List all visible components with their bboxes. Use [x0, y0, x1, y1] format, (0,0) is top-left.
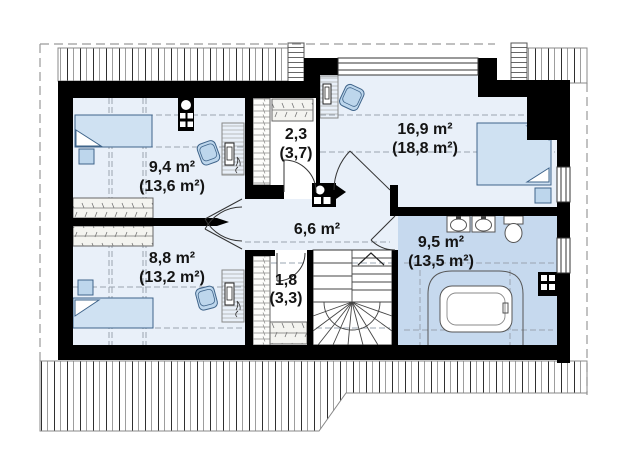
- roof-window-right-icon: [511, 43, 527, 83]
- sink-left: [447, 216, 470, 232]
- closet-top-wardrobe: [272, 99, 313, 121]
- floor-plan-page: 9,4 m² (13,6 m²) 2,3 (3,7) 16,9 m² (18,8…: [0, 0, 640, 473]
- floor-staircase: [313, 250, 392, 345]
- desk-2: [222, 270, 244, 322]
- window-right-bathroom: [557, 238, 570, 273]
- single-bed-2: [73, 298, 153, 328]
- nightstand-4: [535, 188, 551, 203]
- floor-closet-top-door-gap: [284, 185, 316, 199]
- chimney-1: [178, 97, 194, 131]
- floor-bathroom-door-gap: [392, 216, 398, 250]
- tap-icon: [481, 216, 486, 220]
- closet-bottom-shelving: [253, 256, 270, 345]
- label-closet-top-total: (3,7): [280, 145, 313, 162]
- roof-hatch-top-right: [527, 48, 587, 83]
- window-right-bedroom: [557, 167, 570, 202]
- nightstand-1: [79, 149, 94, 164]
- label-closet-bottom-total: (3,3): [270, 290, 303, 307]
- desk-1: [222, 123, 244, 175]
- roof-hatch-top-left: [58, 48, 288, 81]
- roof-window-left-icon: [288, 43, 304, 83]
- label-bedroom-top-left: 9,4 m²: [149, 159, 195, 176]
- label-hall: 6,6 m²: [294, 221, 340, 238]
- label-closet-bottom: 1,8: [275, 272, 297, 289]
- roof-hatch-bottom: [40, 361, 587, 431]
- computer-icon: [225, 143, 234, 165]
- label-bathroom: 9,5 m²: [418, 234, 464, 251]
- sink-right: [472, 216, 495, 232]
- computer-icon: [225, 283, 234, 305]
- wardrobe-1: [73, 198, 153, 218]
- label-bedroom-top-right-total: (18,8 m²): [392, 140, 458, 157]
- label-bedroom-top-right: 16,9 m²: [397, 121, 452, 138]
- tap-icon: [456, 216, 461, 220]
- wardrobe-2: [73, 226, 153, 246]
- label-closet-top: 2,3: [285, 126, 307, 143]
- closet-top-shelving: [253, 98, 270, 185]
- label-bedroom-bottom-left-total: (13,2 m²): [139, 269, 205, 286]
- label-bathroom-total: (13,5 m²): [408, 253, 474, 270]
- chimney-3: [538, 272, 557, 296]
- label-bedroom-top-left-total: (13,6 m²): [139, 178, 205, 195]
- label-bedroom-bottom-left: 8,8 m²: [149, 250, 195, 267]
- nightstand-2: [78, 280, 93, 295]
- floor-plan-canvas: 9,4 m² (13,6 m²) 2,3 (3,7) 16,9 m² (18,8…: [0, 0, 640, 473]
- closet-bottom-wardrobe: [270, 322, 307, 344]
- window-top: [338, 58, 478, 75]
- single-bed-1: [75, 115, 152, 147]
- toilet: [504, 216, 523, 243]
